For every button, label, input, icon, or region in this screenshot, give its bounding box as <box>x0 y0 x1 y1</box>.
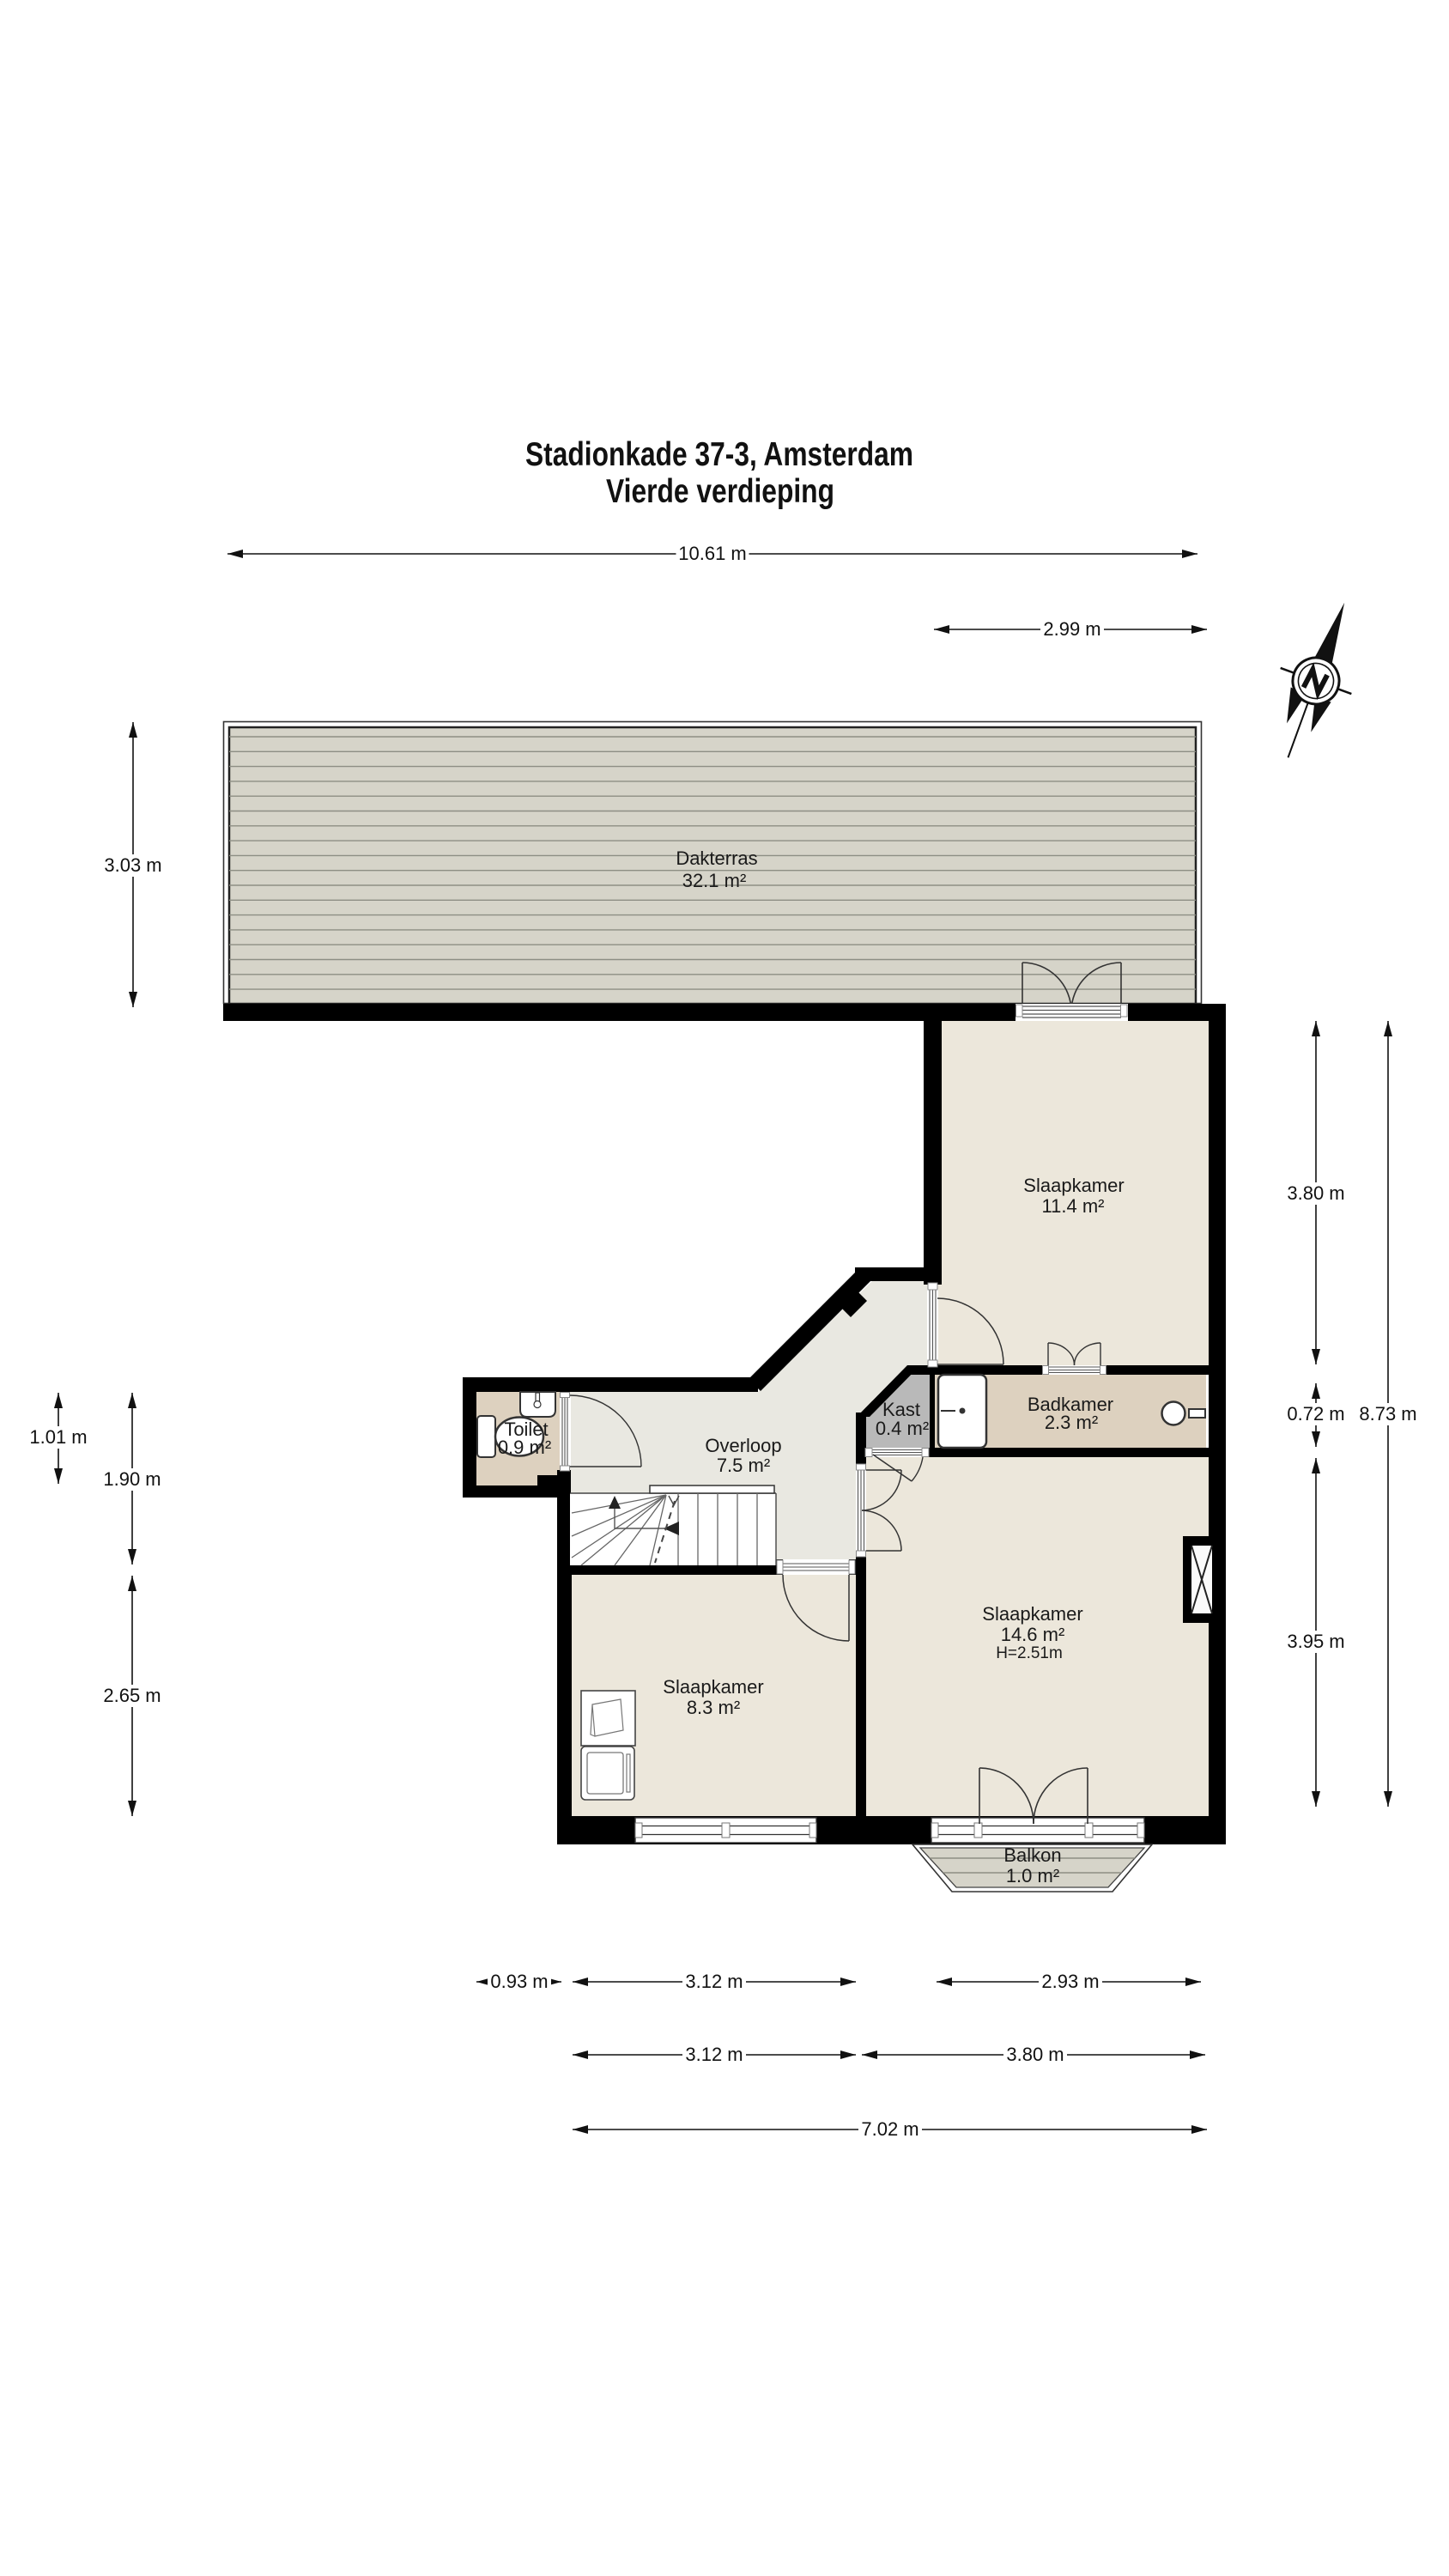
svg-text:1.90 m: 1.90 m <box>103 1468 161 1490</box>
svg-text:3.12 m: 3.12 m <box>685 2044 743 2065</box>
svg-text:H=2.51m: H=2.51m <box>996 1644 1063 1662</box>
svg-text:0.4 m²: 0.4 m² <box>876 1418 929 1439</box>
svg-text:2.93 m: 2.93 m <box>1041 1971 1099 1992</box>
svg-text:3.03 m: 3.03 m <box>104 854 161 876</box>
svg-text:Dakterras: Dakterras <box>676 848 757 869</box>
svg-text:3.80 m: 3.80 m <box>1287 1182 1344 1204</box>
svg-text:1.01 m: 1.01 m <box>29 1426 87 1448</box>
svg-text:2.65 m: 2.65 m <box>103 1685 161 1706</box>
svg-text:0.72 m: 0.72 m <box>1287 1403 1344 1425</box>
svg-text:14.6 m²: 14.6 m² <box>1001 1624 1065 1645</box>
svg-text:32.1 m²: 32.1 m² <box>682 870 747 891</box>
svg-text:7.5 m²: 7.5 m² <box>717 1455 770 1476</box>
svg-text:10.61 m: 10.61 m <box>678 543 747 564</box>
svg-text:11.4 m²: 11.4 m² <box>1042 1195 1105 1217</box>
svg-text:Overloop: Overloop <box>705 1435 781 1456</box>
svg-text:2.3 m²: 2.3 m² <box>1045 1412 1098 1433</box>
svg-text:7.02 m: 7.02 m <box>861 2118 919 2140</box>
svg-text:Stadionkade 37-3, Amsterdam: Stadionkade 37-3, Amsterdam <box>525 436 913 473</box>
svg-text:Slaapkamer: Slaapkamer <box>982 1603 1082 1625</box>
svg-text:1.0 m²: 1.0 m² <box>1006 1865 1059 1886</box>
svg-text:3.12 m: 3.12 m <box>685 1971 743 1992</box>
svg-text:0.9 m²: 0.9 m² <box>498 1437 551 1458</box>
svg-text:Slaapkamer: Slaapkamer <box>663 1676 763 1698</box>
svg-text:8.3 m²: 8.3 m² <box>687 1697 740 1718</box>
svg-text:3.80 m: 3.80 m <box>1006 2044 1064 2065</box>
svg-text:Slaapkamer: Slaapkamer <box>1023 1175 1124 1196</box>
svg-text:Vierde verdieping: Vierde verdieping <box>606 473 834 510</box>
svg-text:3.95 m: 3.95 m <box>1287 1631 1344 1652</box>
svg-text:Balkon: Balkon <box>1003 1844 1061 1866</box>
svg-text:0.93 m: 0.93 m <box>490 1971 548 1992</box>
svg-text:2.99 m: 2.99 m <box>1043 618 1100 640</box>
svg-text:8.73 m: 8.73 m <box>1359 1403 1416 1425</box>
